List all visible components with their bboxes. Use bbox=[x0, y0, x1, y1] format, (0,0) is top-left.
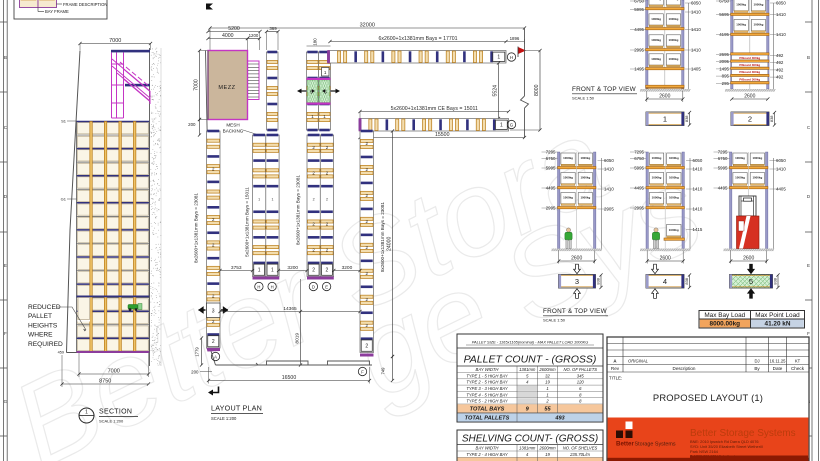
svg-text:1200: 1200 bbox=[249, 33, 259, 38]
svg-text:FRAME DESCRIPTION: FRAME DESCRIPTION bbox=[63, 2, 107, 7]
svg-text:2: 2 bbox=[312, 268, 315, 274]
svg-text:PROPOSED LAYOUT (1): PROPOSED LAYOUT (1) bbox=[653, 392, 763, 403]
svg-text:REQUIRED: REQUIRED bbox=[28, 341, 63, 348]
svg-text:1000kg: 1000kg bbox=[735, 156, 745, 160]
svg-text:DJ: DJ bbox=[754, 358, 759, 363]
svg-text:8000.00kg: 8000.00kg bbox=[710, 321, 741, 328]
svg-text:1: 1 bbox=[85, 410, 88, 416]
svg-text:1000kg: 1000kg bbox=[735, 176, 745, 180]
svg-text:G: G bbox=[4, 399, 8, 404]
svg-text:838: 838 bbox=[596, 277, 601, 284]
svg-text:2: 2 bbox=[212, 339, 215, 345]
svg-text:459: 459 bbox=[58, 351, 64, 355]
svg-text:2: 2 bbox=[748, 115, 752, 124]
svg-text:S1: S1 bbox=[61, 119, 67, 124]
svg-text:1000kg: 1000kg bbox=[652, 176, 662, 180]
svg-text:8750: 8750 bbox=[99, 379, 111, 385]
svg-text:Max Bay Load: Max Bay Load bbox=[704, 312, 745, 319]
svg-text:1000kg: 1000kg bbox=[669, 196, 679, 200]
svg-text:Storage Systems: Storage Systems bbox=[635, 442, 676, 448]
svg-text:3200: 3200 bbox=[287, 265, 298, 271]
svg-text:2600: 2600 bbox=[659, 94, 670, 100]
svg-text:1000kg: 1000kg bbox=[651, 17, 661, 21]
svg-text:PALLET COUNT - (GROSS): PALLET COUNT - (GROSS) bbox=[464, 354, 597, 366]
svg-text:P/Board 300kg: P/Board 300kg bbox=[739, 63, 760, 67]
svg-text:1000kg: 1000kg bbox=[754, 23, 764, 27]
svg-text:1: 1 bbox=[271, 197, 273, 201]
svg-text:5: 5 bbox=[310, 89, 313, 95]
svg-text:16.11.25: 16.11.25 bbox=[770, 358, 787, 363]
svg-text:P/Board 300kg: P/Board 300kg bbox=[739, 70, 760, 74]
svg-text:BAY WIDTH: BAY WIDTH bbox=[476, 446, 500, 451]
svg-text:TOTAL BAYS: TOTAL BAYS bbox=[470, 407, 505, 413]
svg-text:6750: 6750 bbox=[719, 0, 729, 4]
svg-text:HEIGHTS: HEIGHTS bbox=[28, 322, 58, 329]
svg-text:NO. OF SHELVES: NO. OF SHELVES bbox=[563, 446, 598, 451]
svg-text:B: B bbox=[807, 55, 810, 60]
svg-text:TITLE:: TITLE: bbox=[609, 376, 622, 381]
svg-text:8x2600+1x1381mm Bays = 23081: 8x2600+1x1381mm Bays = 23081 bbox=[296, 175, 301, 245]
svg-text:1000kg: 1000kg bbox=[736, 23, 746, 27]
svg-text:G: G bbox=[510, 122, 514, 127]
svg-text:FRONT & TOP VIEW: FRONT & TOP VIEW bbox=[543, 308, 608, 315]
svg-text:By: By bbox=[754, 366, 760, 371]
svg-text:1000kg: 1000kg bbox=[669, 17, 679, 21]
svg-text:Check: Check bbox=[791, 366, 805, 371]
svg-text:749: 749 bbox=[381, 367, 386, 375]
svg-text:3200: 3200 bbox=[342, 265, 353, 271]
svg-text:2600: 2600 bbox=[743, 256, 754, 262]
svg-text:5x2600+1x1381mm CE Bays = 1501: 5x2600+1x1381mm CE Bays = 15011 bbox=[391, 106, 478, 112]
svg-text:1: 1 bbox=[500, 123, 503, 129]
svg-text:16500: 16500 bbox=[282, 375, 297, 381]
svg-text:BACKING: BACKING bbox=[223, 129, 244, 134]
svg-text:1896: 1896 bbox=[510, 36, 520, 41]
svg-text:1000kg: 1000kg bbox=[669, 228, 679, 232]
svg-text:NO. OF PALLETS: NO. OF PALLETS bbox=[563, 367, 597, 372]
svg-text:55: 55 bbox=[544, 407, 551, 413]
svg-text:2: 2 bbox=[326, 197, 328, 201]
svg-text:19: 19 bbox=[545, 452, 550, 457]
svg-text:6x2600+1x1381mm Bays = 17701: 6x2600+1x1381mm Bays = 17701 bbox=[378, 36, 457, 42]
svg-text:5524: 5524 bbox=[493, 85, 499, 97]
svg-text:1000kg: 1000kg bbox=[669, 0, 679, 1]
svg-text:P/Board 300kg: P/Board 300kg bbox=[739, 56, 760, 60]
svg-text:H: H bbox=[271, 284, 274, 289]
svg-text:PALLET SIZE - 1165x1165(nomina: PALLET SIZE - 1165x1165(nominal) - MAX P… bbox=[472, 340, 588, 345]
svg-text:A: A bbox=[214, 354, 217, 359]
svg-text:32: 32 bbox=[545, 373, 550, 378]
svg-text:MEZZ: MEZZ bbox=[218, 85, 235, 91]
svg-text:SCALE 1:50: SCALE 1:50 bbox=[543, 318, 566, 323]
svg-text:180: 180 bbox=[313, 38, 318, 46]
svg-text:1779: 1779 bbox=[195, 347, 200, 357]
svg-text:7000: 7000 bbox=[109, 38, 121, 44]
svg-text:TYPE 3 - 3 HIGH BAY: TYPE 3 - 3 HIGH BAY bbox=[466, 386, 509, 391]
svg-text:1000kg: 1000kg bbox=[736, 3, 746, 7]
svg-text:1000kg: 1000kg bbox=[563, 196, 573, 200]
svg-text:B: B bbox=[4, 55, 7, 60]
svg-text:SCALE 1:50: SCALE 1:50 bbox=[572, 96, 595, 101]
svg-text:SHELVING COUNT- (GROSS): SHELVING COUNT- (GROSS) bbox=[462, 434, 598, 445]
svg-text:1: 1 bbox=[546, 386, 548, 391]
svg-text:2600: 2600 bbox=[744, 94, 755, 100]
svg-text:SCALE 1:200: SCALE 1:200 bbox=[211, 416, 237, 421]
svg-text:BAY WIDTH: BAY WIDTH bbox=[476, 367, 500, 372]
svg-text:Rev: Rev bbox=[611, 366, 620, 371]
svg-text:1: 1 bbox=[663, 115, 667, 124]
svg-text:120: 120 bbox=[577, 380, 585, 385]
svg-text:1000kg: 1000kg bbox=[669, 156, 679, 160]
svg-text:WHERE: WHERE bbox=[28, 332, 53, 339]
svg-text:5200: 5200 bbox=[228, 26, 240, 32]
svg-text:2: 2 bbox=[313, 197, 315, 201]
svg-text:Better Storage Systems: Better Storage Systems bbox=[690, 428, 796, 439]
svg-text:F: F bbox=[4, 331, 7, 336]
svg-text:TYPE 2 - 4 HIGH BAY: TYPE 2 - 4 HIGH BAY bbox=[466, 452, 509, 457]
svg-text:1000kg: 1000kg bbox=[752, 176, 762, 180]
svg-text:32000: 32000 bbox=[360, 23, 375, 29]
svg-text:5: 5 bbox=[749, 277, 753, 286]
svg-text:G1: G1 bbox=[61, 197, 67, 202]
svg-text:838: 838 bbox=[769, 115, 774, 122]
svg-text:1000kg: 1000kg bbox=[754, 3, 764, 7]
svg-text:D: D bbox=[312, 284, 315, 289]
svg-text:3: 3 bbox=[212, 309, 215, 315]
svg-text:1000kg: 1000kg bbox=[752, 156, 762, 160]
svg-text:3: 3 bbox=[575, 277, 579, 286]
svg-text:TYPE 4 - 5 HIGH BAY: TYPE 4 - 5 HIGH BAY bbox=[466, 392, 509, 397]
svg-text:Description: Description bbox=[673, 366, 696, 371]
svg-text:1000kg: 1000kg bbox=[669, 176, 679, 180]
svg-text:1000kg: 1000kg bbox=[652, 196, 662, 200]
svg-text:200: 200 bbox=[188, 122, 196, 127]
svg-text:2: 2 bbox=[365, 343, 368, 349]
svg-text:1000kg: 1000kg bbox=[580, 156, 590, 160]
svg-text:SCALE 1:200: SCALE 1:200 bbox=[99, 419, 124, 424]
svg-text:E: E bbox=[325, 284, 328, 289]
svg-text:1: 1 bbox=[546, 392, 548, 397]
svg-text:TYPE 2 - 5 HIGH BAY: TYPE 2 - 5 HIGH BAY bbox=[466, 380, 509, 385]
svg-text:1381mm: 1381mm bbox=[519, 446, 536, 451]
svg-text:P/Board 300kg: P/Board 300kg bbox=[739, 77, 760, 81]
svg-text:14365: 14365 bbox=[283, 306, 297, 312]
svg-text:1000kg: 1000kg bbox=[669, 38, 679, 42]
svg-text:3753: 3753 bbox=[231, 265, 242, 271]
svg-text:H: H bbox=[257, 284, 260, 289]
svg-text:2: 2 bbox=[326, 268, 329, 274]
svg-text:5x2600+1x1381mm Bays = 15011: 5x2600+1x1381mm Bays = 15011 bbox=[245, 187, 250, 257]
svg-text:ORIGINAL: ORIGINAL bbox=[628, 358, 649, 363]
svg-text:F: F bbox=[807, 331, 810, 336]
svg-text:TYPE 5 - 2 HIGH BAY: TYPE 5 - 2 HIGH BAY bbox=[466, 399, 509, 404]
svg-text:838: 838 bbox=[684, 115, 689, 122]
svg-text:1: 1 bbox=[258, 197, 260, 201]
svg-text:345: 345 bbox=[577, 373, 585, 378]
svg-text:LAYOUT PLAN: LAYOUT PLAN bbox=[211, 404, 262, 413]
svg-text:2600mm: 2600mm bbox=[538, 367, 556, 372]
svg-text:1000kg: 1000kg bbox=[651, 38, 661, 42]
svg-text:19: 19 bbox=[545, 380, 550, 385]
svg-text:1000kg: 1000kg bbox=[580, 176, 590, 180]
svg-text:1: 1 bbox=[258, 268, 261, 274]
svg-text:235.70L/m: 235.70L/m bbox=[569, 452, 590, 457]
svg-text:F: F bbox=[361, 369, 364, 374]
svg-text:41.20 kN: 41.20 kN bbox=[765, 321, 791, 328]
svg-text:1000kg: 1000kg bbox=[652, 156, 662, 160]
svg-text:8000: 8000 bbox=[534, 84, 540, 96]
svg-text:5: 5 bbox=[324, 89, 327, 95]
svg-text:2600mm: 2600mm bbox=[538, 446, 556, 451]
svg-text:H: H bbox=[510, 55, 513, 60]
svg-text:7000: 7000 bbox=[108, 369, 120, 375]
svg-text:BAY FRAME: BAY FRAME bbox=[45, 9, 69, 14]
svg-text:E: E bbox=[807, 263, 810, 268]
svg-text:PALLET: PALLET bbox=[28, 313, 52, 320]
svg-text:838: 838 bbox=[684, 277, 689, 284]
svg-text:2600: 2600 bbox=[571, 256, 582, 262]
svg-text:1: 1 bbox=[497, 55, 500, 61]
svg-text:Max Point Load: Max Point Load bbox=[755, 312, 800, 319]
svg-text:4: 4 bbox=[663, 277, 667, 286]
svg-text:15500: 15500 bbox=[435, 132, 450, 138]
svg-text:KT: KT bbox=[795, 358, 801, 363]
svg-text:MESH: MESH bbox=[226, 123, 239, 128]
svg-text:E: E bbox=[4, 263, 7, 268]
svg-text:1000kg: 1000kg bbox=[651, 57, 661, 61]
svg-text:FRONT & TOP VIEW: FRONT & TOP VIEW bbox=[572, 86, 637, 93]
svg-text:493: 493 bbox=[554, 416, 565, 422]
svg-text:1000kg: 1000kg bbox=[669, 57, 679, 61]
svg-text:2600: 2600 bbox=[660, 256, 671, 262]
svg-text:1000kg: 1000kg bbox=[651, 0, 661, 1]
svg-text:Park NSW 2164: Park NSW 2164 bbox=[690, 449, 719, 454]
svg-text:TYPE 1 - 5 HIGH BAY: TYPE 1 - 5 HIGH BAY bbox=[466, 373, 509, 378]
svg-text:Date: Date bbox=[773, 366, 783, 371]
svg-text:8x2600+1x1381mm Bays = 23081: 8x2600+1x1381mm Bays = 23081 bbox=[380, 202, 385, 272]
svg-text:6750: 6750 bbox=[634, 0, 644, 4]
svg-text:24000: 24000 bbox=[387, 236, 393, 251]
svg-text:1000kg: 1000kg bbox=[563, 156, 573, 160]
svg-text:8x2600+1x1381mm Bays = 23081: 8x2600+1x1381mm Bays = 23081 bbox=[194, 193, 199, 263]
svg-text:1: 1 bbox=[271, 268, 274, 274]
svg-text:1000kg: 1000kg bbox=[580, 196, 590, 200]
svg-text:1: 1 bbox=[324, 70, 327, 75]
svg-text:REDUCED: REDUCED bbox=[28, 304, 61, 311]
svg-text:8019: 8019 bbox=[295, 333, 301, 344]
svg-text:SECTION: SECTION bbox=[99, 409, 132, 416]
svg-text:Better: Better bbox=[616, 441, 634, 448]
svg-text:200: 200 bbox=[191, 370, 199, 375]
svg-text:TOTAL PALLETS: TOTAL PALLETS bbox=[465, 416, 510, 422]
svg-text:7000: 7000 bbox=[194, 79, 200, 91]
svg-text:838: 838 bbox=[773, 277, 778, 284]
svg-text:1381mm: 1381mm bbox=[519, 367, 536, 372]
svg-text:369: 369 bbox=[269, 26, 277, 31]
svg-text:4000: 4000 bbox=[222, 33, 234, 39]
svg-text:1000kg: 1000kg bbox=[563, 176, 573, 180]
